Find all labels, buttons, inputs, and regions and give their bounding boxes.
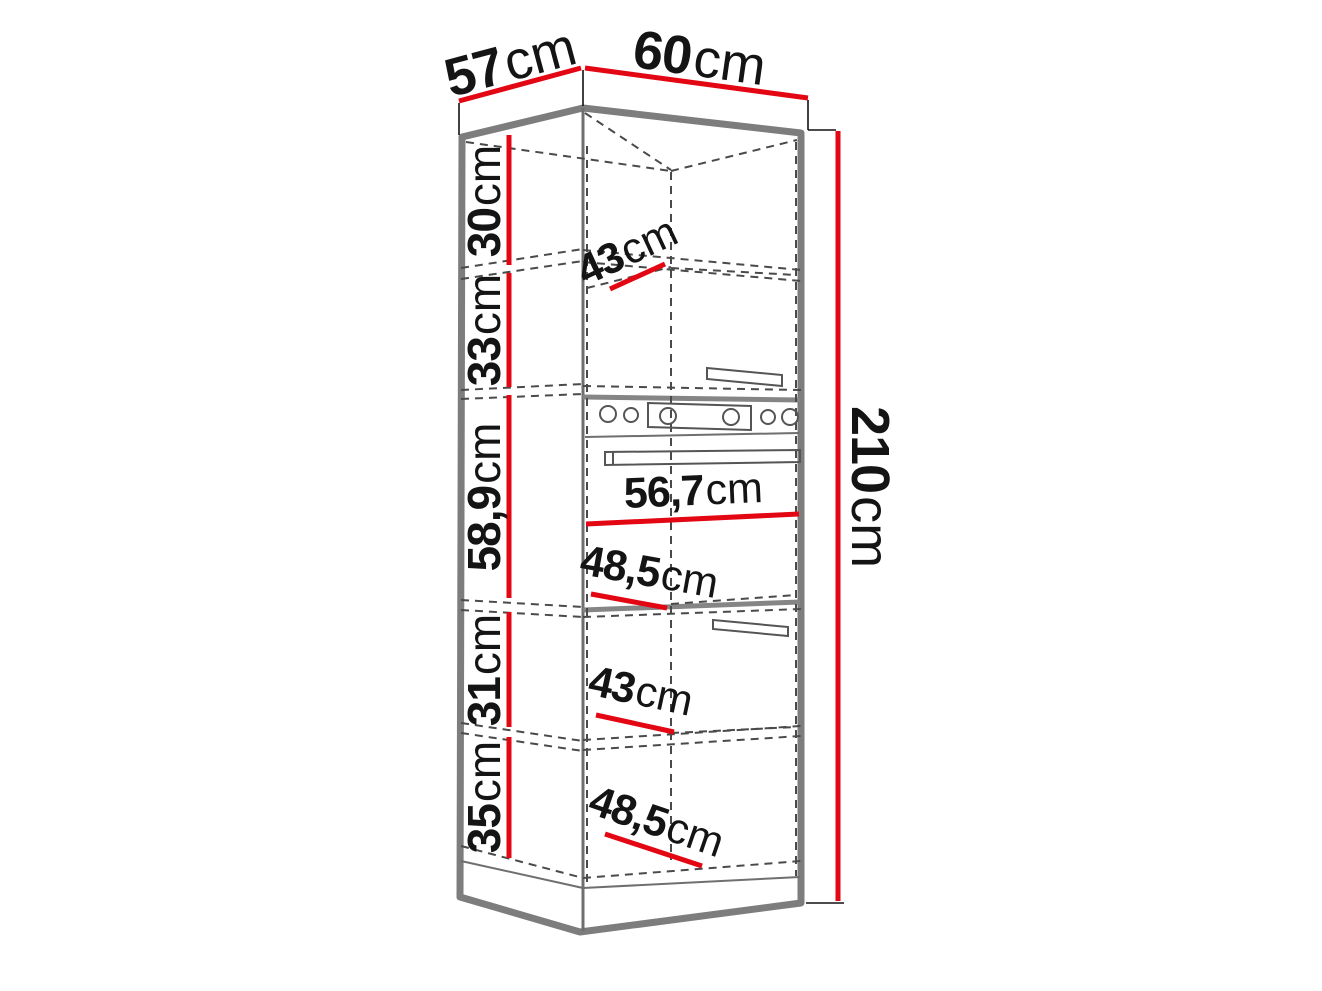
dim-value: 35 [458, 804, 510, 854]
dim-section-31-label: 31cm [458, 614, 510, 727]
dim-unit: cm [840, 496, 900, 568]
dim-value: 60 [629, 19, 695, 86]
dim-unit: cm [458, 741, 510, 802]
dim-width-567-label: 56,7cm [623, 464, 764, 518]
dim-section-33-label: 33cm [458, 274, 510, 387]
dim-unit: cm [458, 423, 510, 484]
dim-height-label: 210cm [840, 406, 900, 568]
dim-unit: cm [458, 145, 510, 206]
cabinet-dimension-diagram: 57cm 60cm 210cm 30cm 33cm 58,9cm 31cm 35… [0, 0, 1322, 991]
dim-section-30-label: 30cm [458, 145, 510, 258]
dim-value: 57 [438, 36, 510, 109]
dim-top-width-label: 60cm [629, 19, 769, 97]
dim-unit: cm [657, 551, 722, 608]
dim-value: 33 [458, 337, 510, 386]
dim-value: 58,9 [458, 486, 510, 572]
dim-value: 56,7 [623, 467, 705, 518]
diagram-canvas: 57cm 60cm 210cm 30cm 33cm 58,9cm 31cm 35… [0, 0, 1322, 991]
dim-top-depth-label: 57cm [438, 16, 582, 108]
dim-value: 210 [840, 406, 900, 493]
dim-unit: cm [458, 614, 510, 675]
oven-niche-top-shelf [583, 397, 800, 400]
dim-unit: cm [458, 274, 510, 335]
dim-unit: cm [497, 16, 582, 93]
dim-value: 30 [458, 208, 510, 257]
dim-section-589-label: 58,9cm [458, 423, 510, 572]
dim-value: 31 [458, 677, 510, 727]
dim-section-35-label: 35cm [458, 741, 510, 854]
dim-unit: cm [690, 28, 770, 97]
dim-unit: cm [705, 464, 764, 514]
